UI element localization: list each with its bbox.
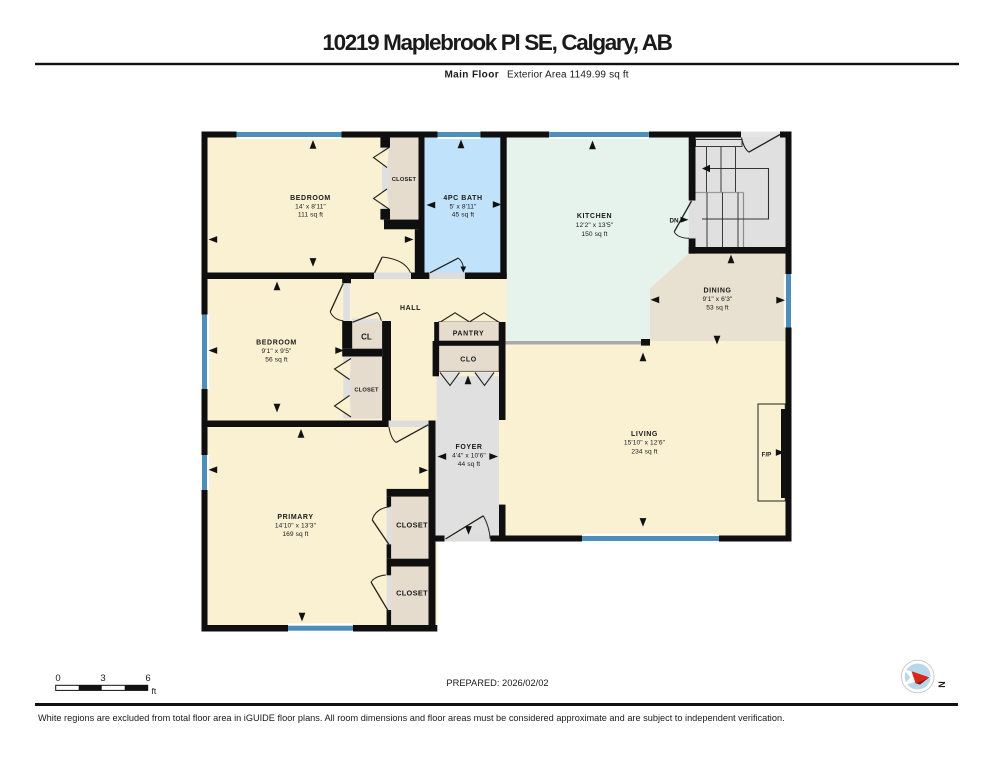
svg-text:BEDROOM: BEDROOM [290,195,331,202]
svg-text:KITCHEN: KITCHEN [577,213,612,220]
svg-text:44 sq ft: 44 sq ft [458,461,480,468]
svg-text:4'4" x 10'6": 4'4" x 10'6" [452,453,486,460]
svg-text:PREPARED: 2026/02/02: PREPARED: 2026/02/02 [446,678,548,688]
svg-text:DINING: DINING [703,288,731,295]
svg-text:5' x 8'11": 5' x 8'11" [450,204,478,211]
svg-text:234 sq ft: 234 sq ft [631,449,657,456]
svg-text:Main Floor: Main Floor [444,70,499,81]
svg-text:150 sq ft: 150 sq ft [581,231,607,238]
svg-text:3: 3 [100,673,105,684]
svg-text:DN: DN [669,218,679,225]
svg-text:PRIMARY: PRIMARY [277,514,313,521]
svg-text:LIVING: LIVING [631,431,658,438]
svg-text:14'10" x 13'3": 14'10" x 13'3" [275,523,317,530]
svg-text:ft: ft [152,686,157,696]
svg-text:CLOSET: CLOSET [354,388,379,394]
svg-text:HALL: HALL [400,305,421,312]
svg-text:53 sq ft: 53 sq ft [706,305,728,312]
svg-text:Exterior Area 1149.99 sq ft: Exterior Area 1149.99 sq ft [507,70,629,81]
svg-text:CLO: CLO [460,357,477,364]
svg-text:6: 6 [145,673,150,684]
svg-text:9'1" x 6'3": 9'1" x 6'3" [703,296,733,303]
svg-text:CLOSET: CLOSET [392,177,417,183]
svg-text:White regions are excluded fro: White regions are excluded from total fl… [38,713,785,723]
svg-text:169 sq ft: 169 sq ft [282,531,308,538]
svg-text:10219 Maplebrook Pl SE, Calgar: 10219 Maplebrook Pl SE, Calgary, AB [322,30,672,55]
svg-text:15'10" x 12'6": 15'10" x 12'6" [624,440,666,447]
svg-text:BEDROOM: BEDROOM [256,340,297,347]
svg-text:CLOSET: CLOSET [396,589,428,598]
svg-text:PANTRY: PANTRY [453,331,485,338]
svg-text:45 sq ft: 45 sq ft [452,212,474,219]
svg-text:F/P: F/P [762,452,772,459]
svg-text:CLOSET: CLOSET [396,521,428,530]
svg-text:FOYER: FOYER [455,444,482,451]
svg-text:14' x 8'11": 14' x 8'11" [295,204,326,211]
svg-text:4PC BATH: 4PC BATH [443,195,482,202]
svg-text:N: N [937,681,947,688]
svg-text:56 sq ft: 56 sq ft [265,357,287,364]
svg-text:CL: CL [361,333,372,342]
svg-text:0: 0 [55,673,60,684]
svg-text:9'1" x 9'5": 9'1" x 9'5" [262,348,292,355]
svg-text:12'2" x 13'5": 12'2" x 13'5" [576,222,614,229]
svg-text:111 sq ft: 111 sq ft [298,212,323,219]
